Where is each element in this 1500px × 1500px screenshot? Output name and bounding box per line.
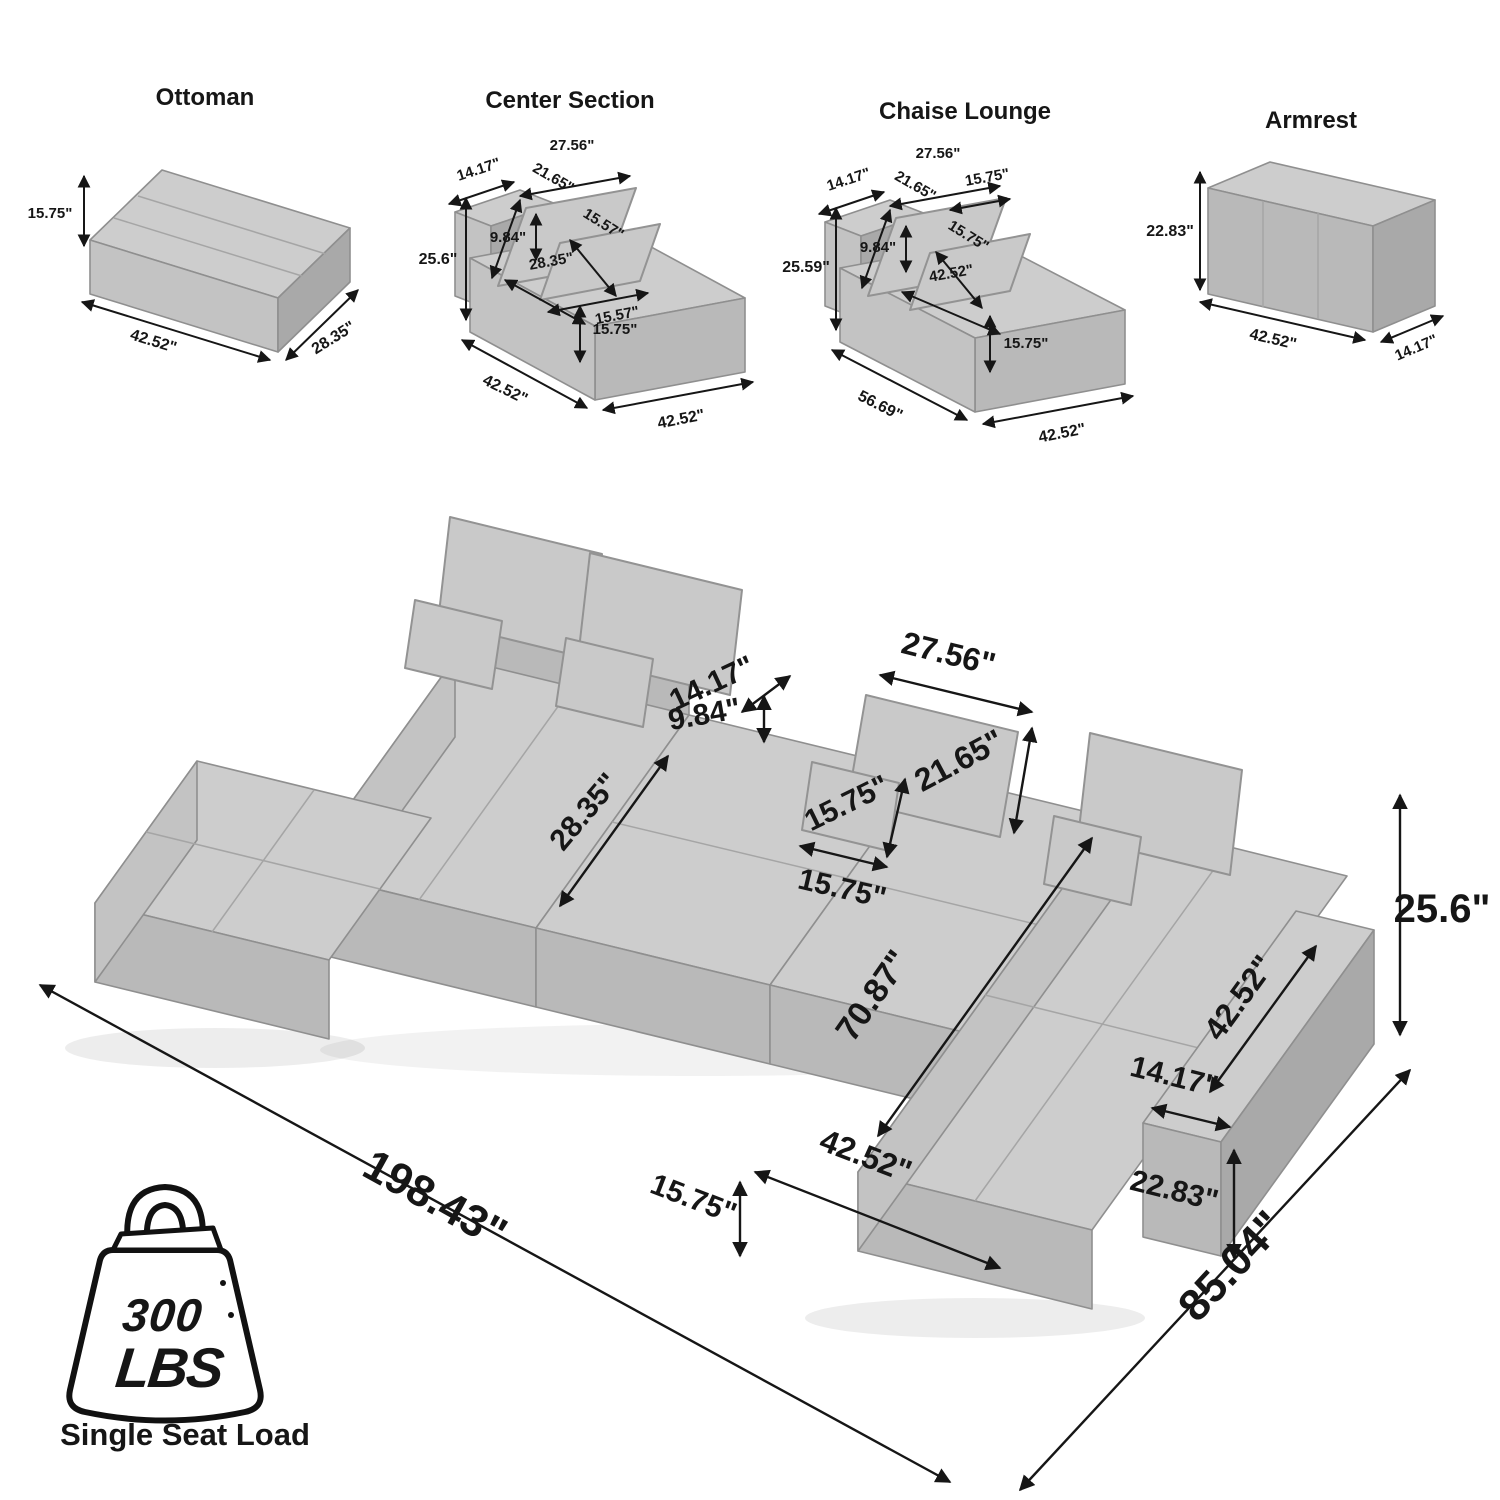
chaise-pillow-width-label: 27.56" [916,145,961,162]
center-total-height-label: 25.6" [419,251,458,268]
shadow [805,1298,1145,1338]
module-armrest: Armrest 22.83" 42.52" 14.17" [1146,107,1443,364]
load-caption: Single Seat Load [60,1417,310,1452]
main-total-height-label: 25.6" [1394,887,1491,931]
armrest-height-label: 22.83" [1146,223,1194,240]
center-length-right-label: 42.52" [656,407,706,433]
ottoman-height-label: 15.75" [28,205,73,222]
load-unit: LBS [113,1336,227,1399]
chaise-pillow-top-edge-label: 15.75" [964,165,1011,189]
center-pillow-height-label: 21.65" [530,160,577,197]
chaise-back-depth-label: 14.17" [825,165,873,195]
ottoman-depth-label: 28.35" [309,318,358,358]
weight-dot [228,1312,234,1318]
center-seat-front-height-label: 15.75" [593,321,638,338]
main-overall-length-label: 198.43" [355,1140,515,1258]
center-length-left-label: 42.52" [480,372,530,408]
chaise-lounge-title: Chaise Lounge [879,98,1051,125]
center-back-depth-label: 14.17" [455,155,503,185]
main-pillow-width-label: 27.56" [898,624,999,682]
ottoman-length-label: 42.52" [128,327,179,357]
chaise-total-height-label: 25.59" [782,259,830,276]
weight-dot [220,1280,226,1286]
load-badge: 300 LBS Single Seat Load [60,1187,310,1452]
load-value: 300 [120,1289,205,1341]
chaise-pillow-height-label: 21.65" [892,168,939,205]
chaise-depth-total-label: 56.69" [855,388,905,425]
armrest-depth-label: 14.17" [1392,331,1440,364]
armrest-title: Armrest [1265,107,1357,134]
armrest-length-label: 42.52" [1248,326,1298,353]
chaise-width-bottom-label: 42.52" [1037,421,1087,447]
center-pillow-width-label: 27.56" [550,137,595,154]
diagram-canvas: Ottoman 15.75" 42.52" 28.35" Center Sect… [0,0,1500,1500]
chaise-seat-front-height-label: 15.75" [1004,335,1049,352]
module-center-section: Center Section 27.56" 21.65" 15.57" 15.5… [419,87,753,432]
main-front-height-label: 15.75" [646,1168,741,1231]
module-ottoman: Ottoman 15.75" 42.52" 28.35" [28,84,359,360]
center-section-title: Center Section [485,87,654,114]
module-chaise-lounge: Chaise Lounge 27.56" 21.65" 15.75" 15.75… [782,98,1133,446]
weight-top-icon [113,1228,221,1250]
chaise-back-rise-label: 9.84" [860,239,896,256]
ottoman-title: Ottoman [156,84,255,111]
center-back-rise-label: 9.84" [490,229,526,246]
product-dimension-diagram: Ottoman 15.75" 42.52" 28.35" Center Sect… [0,0,1500,1500]
